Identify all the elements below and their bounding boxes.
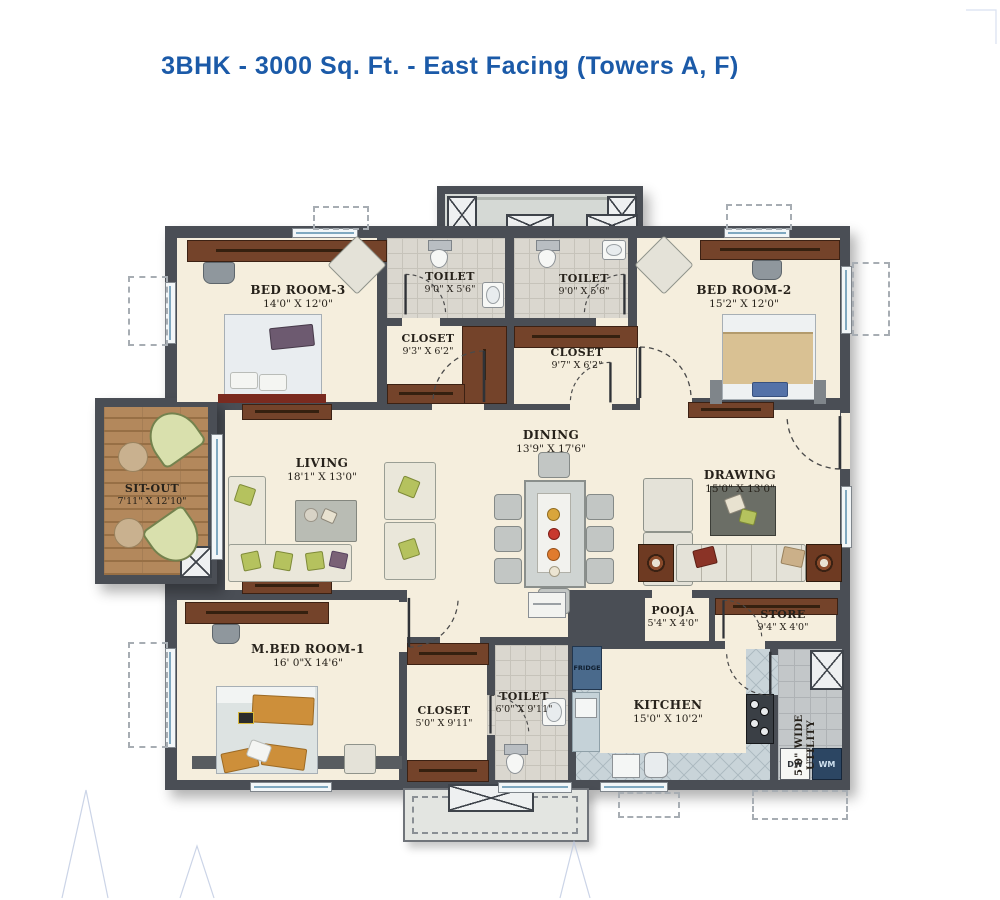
- projection-outline: [313, 206, 369, 230]
- patio-table: [118, 442, 148, 472]
- bed-cushion: [269, 324, 315, 350]
- room-name: M.BED ROOM-1: [251, 642, 365, 656]
- bed-cushion: [752, 382, 788, 397]
- room-label-dining: DINING 13'9" X 17'6": [516, 428, 586, 455]
- projection-outline: [128, 642, 168, 748]
- console-unit: [688, 402, 774, 418]
- dining-chair: [586, 526, 614, 552]
- window: [250, 782, 332, 792]
- room-name: KITCHEN: [633, 698, 703, 712]
- armchair: [643, 478, 693, 532]
- door-swing: [638, 344, 694, 400]
- wardrobe: [185, 602, 329, 624]
- pillow: [230, 372, 258, 389]
- bed-blanket: [723, 332, 813, 384]
- dining-chair: [586, 494, 614, 520]
- toilet-fixture: [428, 240, 450, 268]
- room-dims: 16' 0"X 14'6": [251, 657, 365, 669]
- room-label-toilet1: TOILET 9'0" X 5'6": [425, 270, 476, 295]
- washbasin: [482, 282, 504, 308]
- stove: [746, 694, 774, 744]
- wardrobe: [700, 240, 840, 260]
- door-opening: [402, 318, 440, 326]
- room-label-bedroom2: BED ROOM-2 15'2" X 12'0": [696, 283, 791, 310]
- kitchen-basin: [644, 752, 668, 778]
- patio-table: [114, 518, 144, 548]
- window: [841, 486, 852, 548]
- projection-outline: [618, 792, 680, 818]
- room-name: SIT-OUT: [117, 482, 186, 495]
- room-label-closet3: CLOSET 5'0" X 9'11": [416, 704, 473, 729]
- sitout-sliding-door: [211, 434, 223, 560]
- room-label-toilet2: TOILET 9'0" X 5'6": [559, 272, 610, 297]
- watermark-corner: [940, 0, 1000, 60]
- room-name: STORE: [758, 608, 809, 621]
- closet-wardrobe: [407, 760, 489, 782]
- room-label-living: LIVING 18'1" X 13'0": [287, 456, 357, 483]
- room-dims: 9'4" X 4'0": [758, 622, 809, 633]
- console-unit: [242, 404, 332, 420]
- room-label-master-bedroom: M.BED ROOM-1 16' 0"X 14'6": [251, 642, 365, 669]
- room-name: CLOSET: [551, 346, 604, 359]
- room-name: BED ROOM-3: [250, 283, 345, 297]
- room-label-kitchen: KITCHEN 15'0" X 10'2": [633, 698, 703, 725]
- counter-sink: [575, 698, 597, 718]
- room-label-toilet3: TOILET 6'0" X 9'11": [496, 690, 553, 715]
- toilet-fixture: [504, 744, 526, 774]
- sofa-cushion: [240, 550, 261, 571]
- food-plate: [547, 508, 560, 521]
- floor-plan: 3BHK - 3000 Sq. Ft. - East Facing (Tower…: [0, 0, 1000, 900]
- armchair: [344, 744, 376, 774]
- room-dims: 18'1" X 13'0": [287, 471, 357, 483]
- room-dims: 9'7" X 6'2": [551, 360, 604, 371]
- room-dims: 9'3" X 6'2": [402, 346, 455, 357]
- washbasin: [602, 240, 626, 260]
- room-dims: 13'9" X 17'6": [516, 443, 586, 455]
- bed-base: [218, 394, 326, 403]
- room-label-utility: 5'0" WIDE UTILITY: [794, 690, 824, 800]
- toilet-fixture: [536, 240, 558, 268]
- desk-chair: [203, 262, 235, 284]
- fridge: FRIDGE: [572, 646, 602, 690]
- table-decor: [304, 508, 318, 522]
- room-label-closet1: CLOSET 9'3" X 6'2": [402, 332, 455, 357]
- projection-outline: [128, 276, 168, 346]
- room-name: LIVING: [287, 456, 357, 470]
- room-name: CLOSET: [402, 332, 455, 345]
- nightstand: [814, 380, 826, 404]
- room-name: TOILET: [559, 272, 610, 285]
- room-name: TOILET: [496, 690, 553, 703]
- window: [841, 266, 852, 334]
- nightstand: [710, 380, 722, 404]
- book: [238, 712, 254, 724]
- room-dims: 5'0" X 9'11": [416, 718, 473, 729]
- room-dims: 15'0" X 10'2": [633, 713, 703, 725]
- room-dims: 5'4" X 4'0": [648, 618, 699, 629]
- room-name: TOILET: [425, 270, 476, 283]
- room-label-bedroom3: BED ROOM-3 14'0" X 12'0": [250, 283, 345, 310]
- room-name: BED ROOM-2: [696, 283, 791, 297]
- duct-railing: [452, 197, 628, 200]
- closet-wardrobe: [514, 326, 638, 348]
- sofa-cushion: [329, 550, 349, 569]
- side-table: [806, 544, 842, 582]
- projection-outline: [852, 262, 890, 336]
- fridge-label: FRIDGE: [573, 664, 600, 672]
- bed-throw: [251, 694, 314, 725]
- desk-chair: [752, 260, 782, 280]
- room-name: CLOSET: [416, 704, 473, 717]
- dining-chair: [586, 558, 614, 584]
- sofa-cushion: [273, 551, 294, 572]
- dining-chair: [538, 452, 570, 478]
- dining-chair: [494, 526, 522, 552]
- food-plate: [547, 548, 560, 561]
- door-swing: [407, 596, 461, 650]
- dining-chair: [494, 494, 522, 520]
- room-name: POOJA: [648, 604, 699, 617]
- door-opening: [725, 641, 765, 649]
- cabinet: [528, 592, 566, 618]
- room-dims: 14'0" X 12'0": [250, 298, 345, 310]
- door-opening: [570, 404, 612, 410]
- plan-title: 3BHK - 3000 Sq. Ft. - East Facing (Tower…: [160, 52, 740, 81]
- pillow: [259, 374, 287, 391]
- room-label-sitout: SIT-OUT 7'11" X 12'10": [117, 482, 186, 507]
- food-plate: [549, 566, 560, 577]
- room-dims: 15'2" X 12'0": [696, 298, 791, 310]
- room-dims: 15'0" X 13'0": [704, 483, 776, 495]
- food-plate: [548, 528, 560, 540]
- door-opening: [652, 590, 692, 598]
- main-door-swing: [784, 414, 842, 472]
- room-label-closet2: CLOSET 9'7" X 6'2": [551, 346, 604, 371]
- room-dims: 7'11" X 12'10": [117, 496, 186, 507]
- shaft-symbol: [810, 650, 844, 690]
- room-label-pooja: POOJA 5'4" X 4'0": [648, 604, 699, 629]
- room-dims: 9'0" X 5'6": [559, 286, 610, 297]
- entry-sill: [498, 782, 572, 793]
- room-dims: 9'0" X 5'6": [425, 284, 476, 295]
- door-opening: [399, 602, 407, 652]
- room-dims: 6'0" X 9'11": [496, 704, 553, 715]
- main-entry-opening: [841, 413, 850, 469]
- side-table: [638, 544, 674, 582]
- room-name: DINING: [516, 428, 586, 442]
- dining-chair: [494, 558, 522, 584]
- window: [600, 782, 668, 792]
- kitchen-sink: [612, 754, 640, 778]
- door-opening: [596, 318, 628, 326]
- projection-outline: [726, 204, 792, 230]
- room-label-store: STORE 9'4" X 4'0": [758, 608, 809, 633]
- room-label-drawing: DRAWING 15'0" X 13'0": [704, 468, 776, 495]
- desk-chair: [212, 624, 240, 644]
- sofa-cushion: [305, 551, 325, 571]
- door-swing: [724, 650, 772, 698]
- room-name: DRAWING: [704, 468, 776, 482]
